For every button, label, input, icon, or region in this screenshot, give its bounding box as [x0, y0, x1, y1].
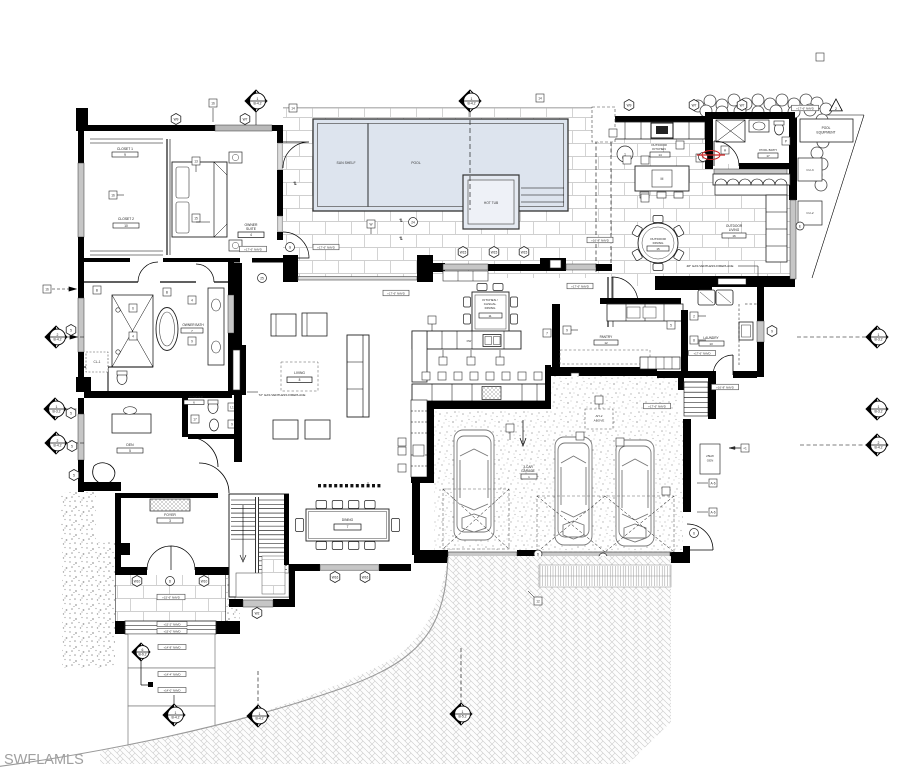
svg-text:W9: W9 [627, 103, 632, 107]
svg-text:4: 4 [132, 334, 134, 338]
svg-text:B-3.2: B-3.2 [874, 410, 882, 414]
svg-text:W2: W2 [255, 611, 260, 615]
svg-text:W7: W7 [740, 103, 745, 107]
svg-text:25: 25 [260, 276, 264, 280]
svg-text:W15: W15 [491, 250, 498, 254]
svg-text:⇅: ⇅ [399, 218, 403, 224]
svg-text:17: 17 [193, 417, 197, 421]
svg-text:16: 16 [732, 234, 736, 238]
svg-text:POOL BATH: POOL BATH [759, 148, 776, 152]
svg-text:9: 9 [771, 329, 773, 333]
svg-text:+16'-8" NAVD: +16'-8" NAVD [716, 385, 734, 389]
svg-text:6: 6 [142, 648, 144, 652]
svg-text:SWFLAMLS: SWFLAMLS [4, 752, 84, 768]
svg-text:W9: W9 [174, 117, 179, 121]
svg-text:W15: W15 [460, 250, 467, 254]
svg-text:CU-3: CU-3 [806, 168, 813, 172]
svg-text:1: 1 [878, 333, 880, 337]
svg-text:4: 4 [191, 298, 193, 302]
svg-text:L1: L1 [230, 405, 234, 409]
svg-text:14: 14 [291, 106, 295, 110]
svg-text:POOL: POOL [822, 126, 831, 130]
svg-text:E: E [799, 224, 801, 228]
svg-text:1: 1 [175, 711, 177, 715]
svg-text:+17'-6" NAVD: +17'-6" NAVD [693, 351, 710, 355]
svg-text:KITCHEN: KITCHEN [652, 147, 666, 151]
svg-text:W16: W16 [362, 575, 369, 579]
svg-text:A-6: A-6 [711, 481, 716, 485]
svg-text:16: 16 [45, 287, 49, 291]
svg-text:W10: W10 [201, 579, 208, 583]
svg-text:+17'-6" NAVD: +17'-6" NAVD [796, 106, 814, 110]
svg-text:P: P [785, 139, 787, 143]
svg-text:5: 5 [71, 444, 73, 448]
svg-text:5: 5 [73, 473, 75, 477]
svg-text:EQUIPMENT: EQUIPMENT [817, 131, 836, 135]
svg-text:W: W [369, 222, 372, 226]
svg-text:7: 7 [546, 331, 548, 335]
svg-text:9: 9 [566, 328, 568, 332]
svg-text:+14'-8" NAVD: +14'-8" NAVD [163, 645, 180, 649]
svg-text:B-3.2: B-3.2 [874, 338, 882, 342]
svg-text:LIVING: LIVING [729, 228, 740, 232]
svg-text:B-3.2: B-3.2 [52, 410, 60, 414]
svg-text:24: 24 [411, 220, 415, 224]
svg-text:13: 13 [194, 159, 198, 163]
svg-text:8: 8 [693, 338, 695, 342]
svg-text:5: 5 [70, 328, 72, 332]
svg-text:14: 14 [658, 153, 662, 157]
svg-text:SUN SHELF: SUN SHELF [336, 161, 355, 165]
svg-text:LAUNDRY: LAUNDRY [703, 336, 719, 340]
svg-text:W16: W16 [332, 575, 339, 579]
svg-text:2: 2 [835, 107, 837, 111]
svg-text:17: 17 [766, 154, 770, 158]
svg-text:2: 2 [57, 439, 59, 443]
svg-text:6: 6 [693, 531, 695, 535]
svg-text:+1: +1 [743, 446, 747, 450]
svg-text:B-4.2: B-4.2 [253, 102, 261, 106]
svg-text:48" GAS VENTLESS FIREPLACE: 48" GAS VENTLESS FIREPLACE [686, 264, 733, 268]
svg-text:W15: W15 [521, 250, 528, 254]
svg-text:5: 5 [70, 411, 72, 415]
svg-text:4: 4 [250, 233, 252, 237]
svg-text:W7: W7 [692, 103, 697, 107]
svg-text:1: 1 [56, 405, 58, 409]
svg-text:ABOVE: ABOVE [594, 419, 605, 423]
svg-text:B-4.2: B-4.2 [467, 102, 475, 106]
svg-text:B-4.2: B-4.2 [255, 717, 263, 721]
svg-text:POOL: POOL [411, 161, 421, 165]
svg-text:LIVING: LIVING [294, 371, 305, 375]
svg-text:⇅: ⇅ [293, 181, 297, 187]
svg-text:15: 15 [656, 247, 660, 251]
svg-text:12: 12 [536, 599, 540, 603]
svg-text:DW: DW [467, 339, 472, 343]
svg-text:9: 9 [191, 339, 193, 343]
svg-text:+15'-0" NAVD: +15'-0" NAVD [163, 629, 180, 633]
svg-text:2: 2 [878, 441, 880, 445]
svg-text:B: B [96, 288, 98, 292]
svg-text:6: 6 [132, 306, 134, 310]
svg-text:9: 9 [124, 153, 126, 157]
svg-text:16: 16 [211, 101, 215, 105]
svg-text:GEN: GEN [707, 459, 714, 463]
svg-text:1: 1 [259, 712, 261, 716]
svg-text:11: 11 [488, 314, 491, 318]
svg-text:OWNER BATH: OWNER BATH [182, 323, 204, 327]
svg-text:+17'-6" NAVD: +17'-6" NAVD [244, 247, 262, 251]
svg-text:16: 16 [111, 193, 115, 197]
svg-text:2: 2 [693, 314, 695, 318]
svg-text:FOYER: FOYER [164, 513, 176, 517]
svg-text:+17'-6" NAVD: +17'-6" NAVD [648, 404, 666, 408]
svg-text:B-9.2: B-9.2 [138, 653, 146, 657]
svg-text:1: 1 [878, 405, 880, 409]
svg-text:B-5.2: B-5.2 [458, 715, 466, 719]
svg-text:+15'-6" NAVD: +15'-6" NAVD [162, 595, 180, 599]
svg-text:5: 5 [129, 449, 131, 453]
svg-text:W7: W7 [243, 117, 248, 121]
svg-text:B-4.2: B-4.2 [53, 444, 61, 448]
svg-text:25kW: 25kW [706, 454, 714, 458]
svg-text:+16'-8" NAVD: +16'-8" NAVD [591, 238, 609, 242]
svg-text:2: 2 [57, 333, 59, 337]
svg-text:15: 15 [194, 216, 198, 220]
svg-text:+15'-2" NAVD: +15'-2" NAVD [163, 622, 180, 626]
svg-text:13: 13 [709, 342, 713, 346]
svg-text:DEN: DEN [126, 443, 134, 447]
svg-text:DINING: DINING [342, 518, 354, 522]
svg-text:SUITE: SUITE [246, 227, 257, 231]
svg-text:CLOSET 1: CLOSET 1 [117, 147, 133, 151]
svg-text:8: 8 [299, 378, 301, 382]
svg-text:HOT TUB: HOT TUB [484, 201, 499, 205]
svg-text:POWDER: POWDER [189, 395, 204, 399]
svg-text:⇅: ⇅ [399, 236, 403, 242]
svg-text:1: 1 [257, 97, 259, 101]
svg-text:B-4.2: B-4.2 [874, 446, 882, 450]
svg-text:+17'-6" NAVD: +17'-6" NAVD [387, 291, 405, 295]
svg-text:B-4.2: B-4.2 [171, 716, 179, 720]
svg-text:+17'-6" NAVD: +17'-6" NAVD [571, 284, 589, 288]
svg-text:DINING: DINING [485, 306, 496, 310]
svg-text:12: 12 [604, 341, 608, 345]
svg-text:72" GAS VENTLESS FIREPLACE: 72" GAS VENTLESS FIREPLACE [258, 393, 305, 397]
svg-text:B-4.2: B-4.2 [53, 338, 61, 342]
svg-text:M: M [661, 177, 664, 181]
svg-text:1: 1 [462, 710, 464, 714]
svg-text:W10: W10 [134, 579, 141, 583]
svg-text:14: 14 [538, 96, 542, 100]
svg-text:GARAGE: GARAGE [521, 469, 535, 473]
svg-text:10: 10 [124, 224, 128, 228]
svg-text:B: B [166, 290, 168, 294]
svg-text:9: 9 [231, 422, 233, 426]
svg-text:CLOSET 2: CLOSET 2 [118, 217, 134, 221]
svg-text:+14'-0" NAVD: +14'-0" NAVD [163, 688, 180, 692]
svg-text:5: 5 [670, 323, 672, 327]
svg-text:CL-1: CL-1 [94, 360, 101, 364]
svg-text:AH-2: AH-2 [595, 414, 602, 418]
svg-text:CU-2: CU-2 [806, 211, 813, 215]
svg-text:7: 7 [347, 525, 349, 529]
svg-text:PANTRY: PANTRY [600, 335, 614, 339]
svg-text:A-6: A-6 [711, 510, 716, 514]
svg-text:3: 3 [169, 519, 171, 523]
svg-text:DINING: DINING [653, 241, 664, 245]
svg-text:+17'-6" NAVD: +17'-6" NAVD [317, 245, 335, 249]
svg-text:+14'-4" NAVD: +14'-4" NAVD [163, 672, 180, 676]
svg-text:1: 1 [471, 97, 473, 101]
